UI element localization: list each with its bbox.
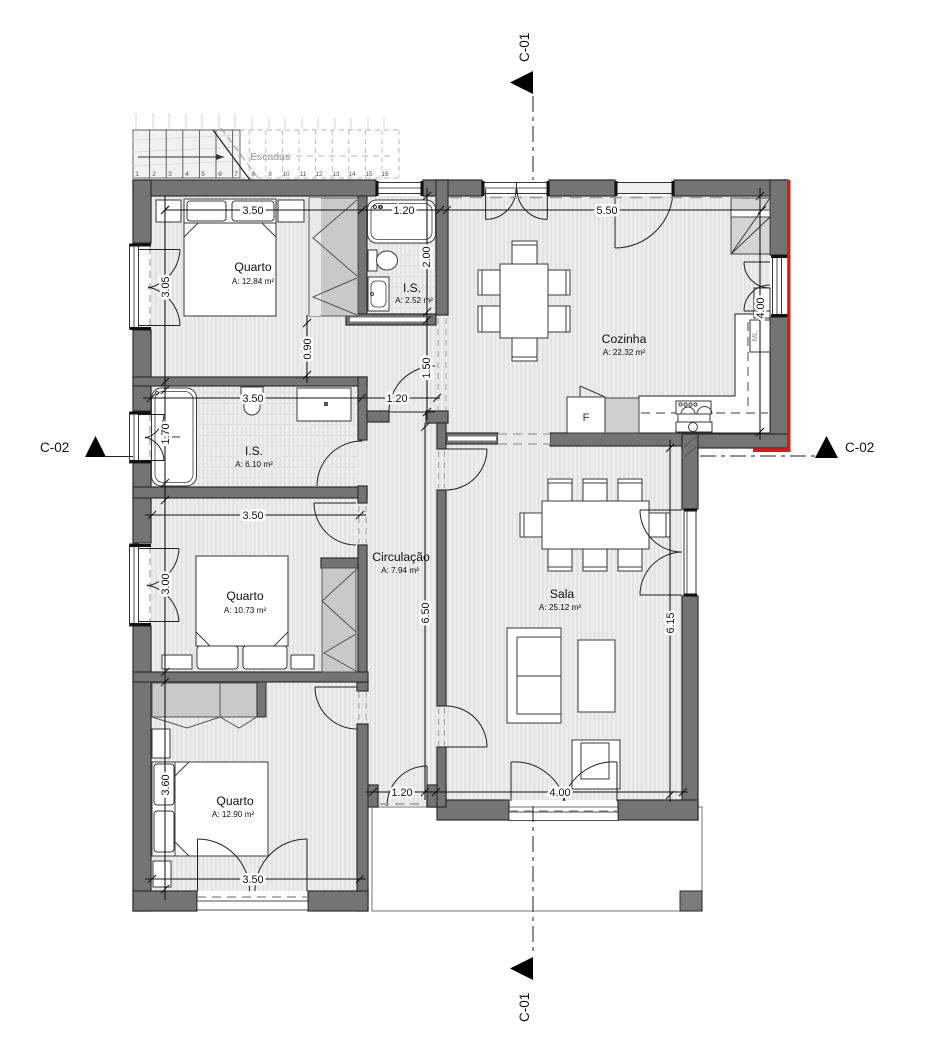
svg-text:F: F — [583, 412, 590, 424]
svg-text:2.00: 2.00 — [421, 246, 433, 267]
svg-text:1: 1 — [135, 171, 139, 178]
svg-text:4.00: 4.00 — [549, 787, 570, 799]
svg-text:1.50: 1.50 — [421, 357, 433, 378]
svg-text:3.50: 3.50 — [242, 205, 263, 217]
svg-text:5.50: 5.50 — [596, 205, 617, 217]
svg-text:A: 10.73 m²: A: 10.73 m² — [224, 606, 267, 615]
svg-text:Circulação: Circulação — [372, 550, 430, 564]
svg-text:C-02: C-02 — [40, 440, 69, 455]
svg-text:3.50: 3.50 — [242, 510, 263, 522]
svg-text:A: 6.10 m²: A: 6.10 m² — [235, 460, 273, 469]
svg-text:Quarto: Quarto — [216, 794, 253, 808]
svg-text:A: 2.52 m²: A: 2.52 m² — [395, 296, 433, 305]
svg-text:13: 13 — [332, 171, 340, 178]
svg-text:3.60: 3.60 — [160, 774, 172, 795]
svg-text:6.50: 6.50 — [420, 602, 432, 623]
svg-text:A: 7.94 m²: A: 7.94 m² — [381, 566, 419, 575]
svg-text:A: 22.32 m²: A: 22.32 m² — [603, 348, 646, 357]
svg-text:C-01: C-01 — [517, 33, 532, 62]
svg-text:3.50: 3.50 — [242, 874, 263, 886]
svg-text:4.00: 4.00 — [755, 297, 767, 318]
svg-text:C-02: C-02 — [845, 440, 874, 455]
svg-text:14: 14 — [348, 171, 356, 178]
svg-text:A: 12.90 m²: A: 12.90 m² — [212, 810, 255, 819]
svg-text:3: 3 — [168, 171, 172, 178]
svg-text:I.S.: I.S. — [245, 444, 263, 458]
svg-text:12: 12 — [315, 171, 323, 178]
svg-text:3.00: 3.00 — [160, 573, 172, 594]
svg-text:ML: ML — [750, 331, 759, 341]
svg-text:3.50: 3.50 — [242, 393, 263, 405]
svg-text:C-01: C-01 — [517, 993, 532, 1022]
svg-text:15: 15 — [365, 171, 373, 178]
svg-text:0.90: 0.90 — [302, 338, 314, 359]
svg-text:6.15: 6.15 — [665, 612, 677, 633]
svg-text:Sala: Sala — [550, 587, 575, 601]
svg-text:Cozinha: Cozinha — [602, 332, 647, 346]
svg-text:1.20: 1.20 — [391, 787, 412, 799]
svg-text:I.S.: I.S. — [403, 281, 421, 295]
svg-text:8: 8 — [251, 171, 255, 178]
svg-text:9: 9 — [268, 171, 272, 178]
svg-text:3.05: 3.05 — [160, 276, 172, 297]
svg-text:11: 11 — [300, 171, 307, 178]
svg-text:1.70: 1.70 — [160, 423, 172, 444]
svg-text:A: 25.12 m²: A: 25.12 m² — [539, 603, 582, 612]
svg-text:2: 2 — [152, 171, 156, 178]
svg-text:6: 6 — [218, 171, 222, 178]
svg-text:5: 5 — [201, 171, 205, 178]
svg-text:Quarto: Quarto — [234, 260, 271, 274]
svg-text:16: 16 — [381, 171, 389, 178]
svg-text:4: 4 — [185, 171, 189, 178]
svg-text:A: 12.84 m²: A: 12.84 m² — [232, 277, 275, 286]
svg-text:Escadas: Escadas — [250, 151, 290, 163]
svg-text:Quarto: Quarto — [226, 589, 263, 603]
svg-text:1.20: 1.20 — [386, 393, 407, 405]
svg-text:7: 7 — [234, 171, 238, 178]
svg-text:10: 10 — [282, 171, 290, 178]
svg-text:1.20: 1.20 — [393, 205, 414, 217]
